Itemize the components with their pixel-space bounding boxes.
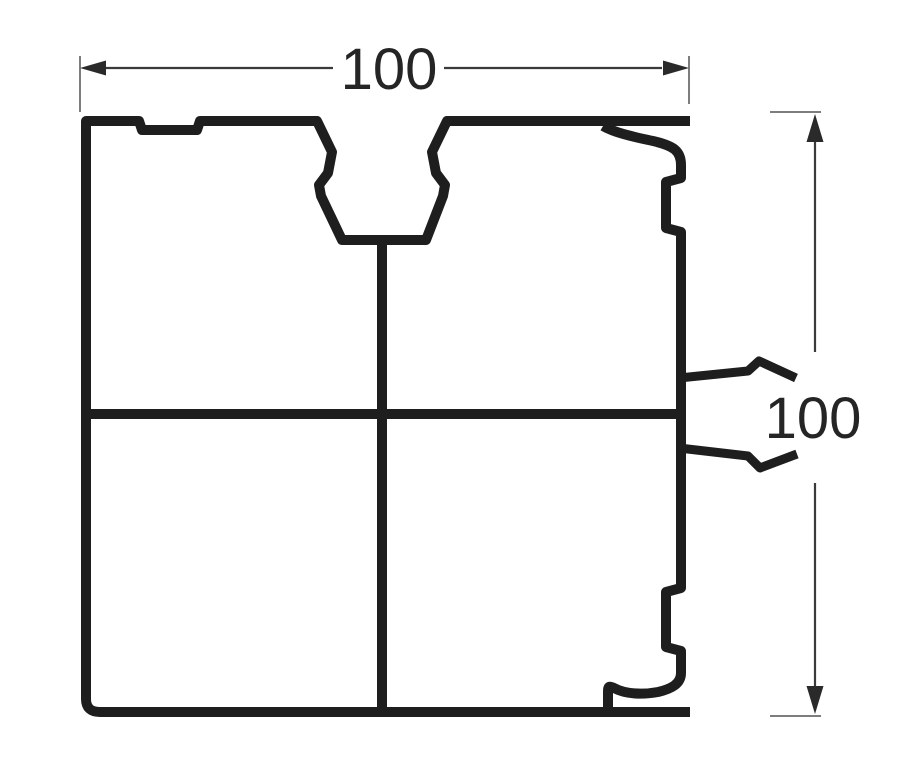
profile-drawing-svg: 100 100 bbox=[0, 0, 922, 764]
drawing-canvas: 100 100 bbox=[0, 0, 922, 764]
height-dimension-label: 100 bbox=[765, 386, 862, 451]
canvas-background bbox=[0, 0, 922, 764]
width-dimension-label: 100 bbox=[341, 37, 438, 102]
